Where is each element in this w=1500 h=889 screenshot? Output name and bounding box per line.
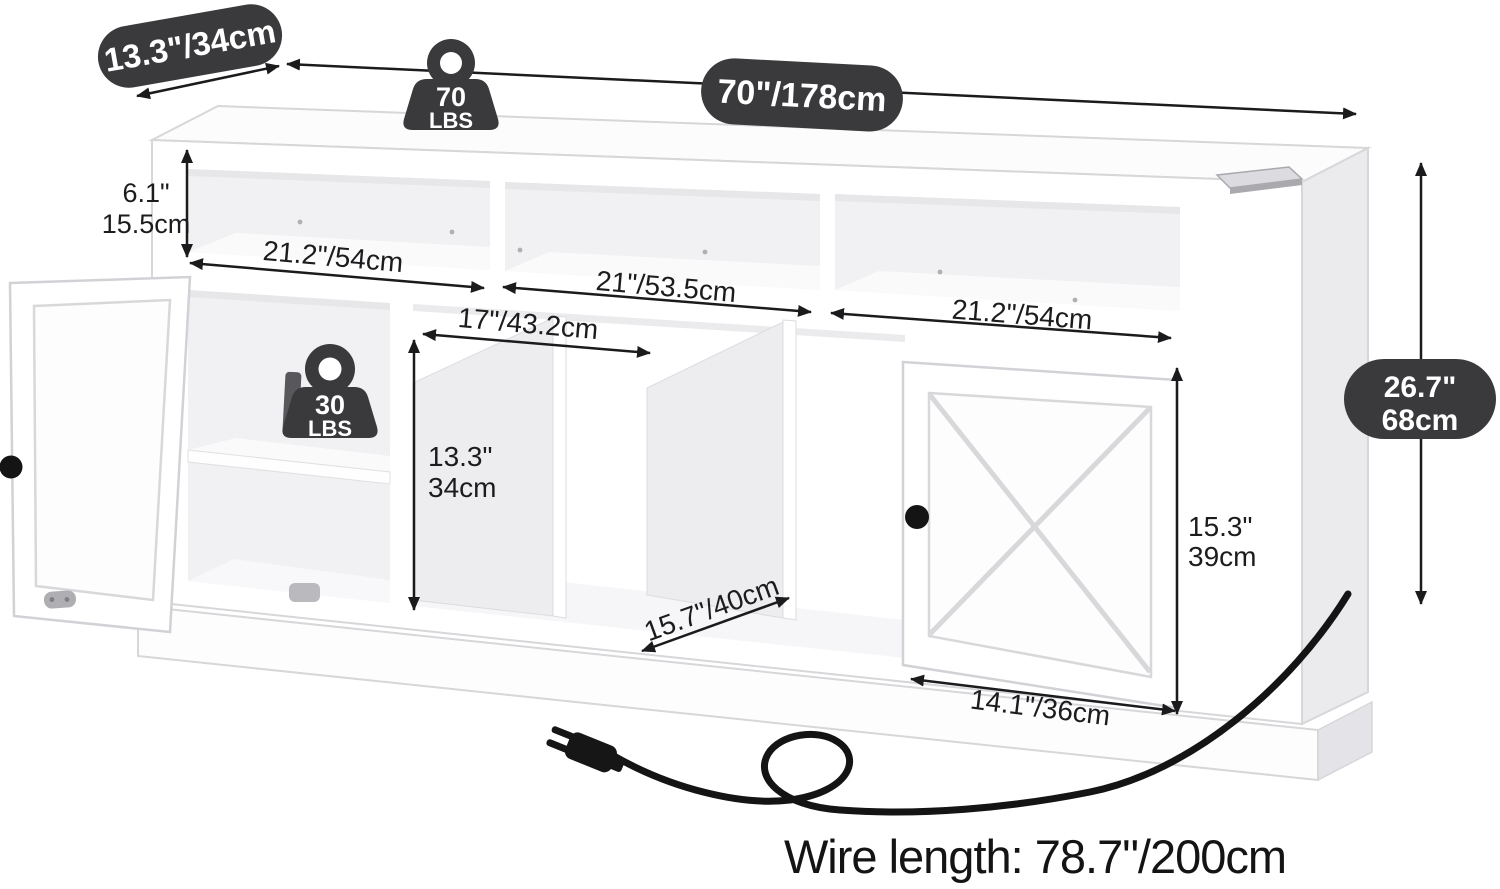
- plinth-right-side: [1318, 702, 1372, 780]
- shelf-hinge-plate: [289, 583, 320, 602]
- badge-height-label-line1: 26.7": [1384, 371, 1457, 404]
- left-door-inner-panel: [34, 300, 170, 600]
- badge-depth: 13.3"/34cm: [93, 0, 287, 93]
- weight-30-unit: LBS: [308, 416, 352, 441]
- diagram-canvas: 6.1" 15.5cm 21.2"/54cm 21"/53.5cm 21.2"/…: [0, 0, 1500, 889]
- media-height-label-line2: 34cm: [428, 472, 496, 503]
- left-cabinet-opening: [188, 290, 390, 603]
- cabinet-right-side-panel: [1302, 148, 1368, 724]
- open-left-door: [0, 277, 190, 632]
- furniture-dimension-diagram: 6.1" 15.5cm 21.2"/54cm 21"/53.5cm 21.2"/…: [0, 0, 1500, 889]
- badge-width: 70"/178cm: [699, 57, 904, 133]
- left-door-knob: [0, 456, 23, 479]
- badge-height: 26.7" 68cm: [1344, 359, 1496, 439]
- barn-door: [903, 362, 1177, 708]
- cubby-height-label-line2: 15.5cm: [102, 209, 191, 239]
- cabinet-illustration: [0, 106, 1372, 780]
- barn-door-knob: [905, 505, 929, 529]
- weight-70-unit: LBS: [429, 108, 473, 133]
- power-plug-icon: [544, 723, 629, 779]
- cubby-height-label-line1: 6.1": [122, 178, 169, 208]
- badge-height-label-line2: 68cm: [1382, 404, 1459, 437]
- door-height-label-line1: 15.3": [1188, 511, 1252, 542]
- media-height-label-line1: 13.3": [428, 441, 492, 472]
- door-height-label-line2: 39cm: [1188, 541, 1256, 572]
- left-door-hinge: [43, 590, 76, 609]
- wire-length-label: Wire length: 78.7"/200cm: [784, 830, 1286, 883]
- weight-70lbs-icon: 70 LBS: [403, 39, 498, 133]
